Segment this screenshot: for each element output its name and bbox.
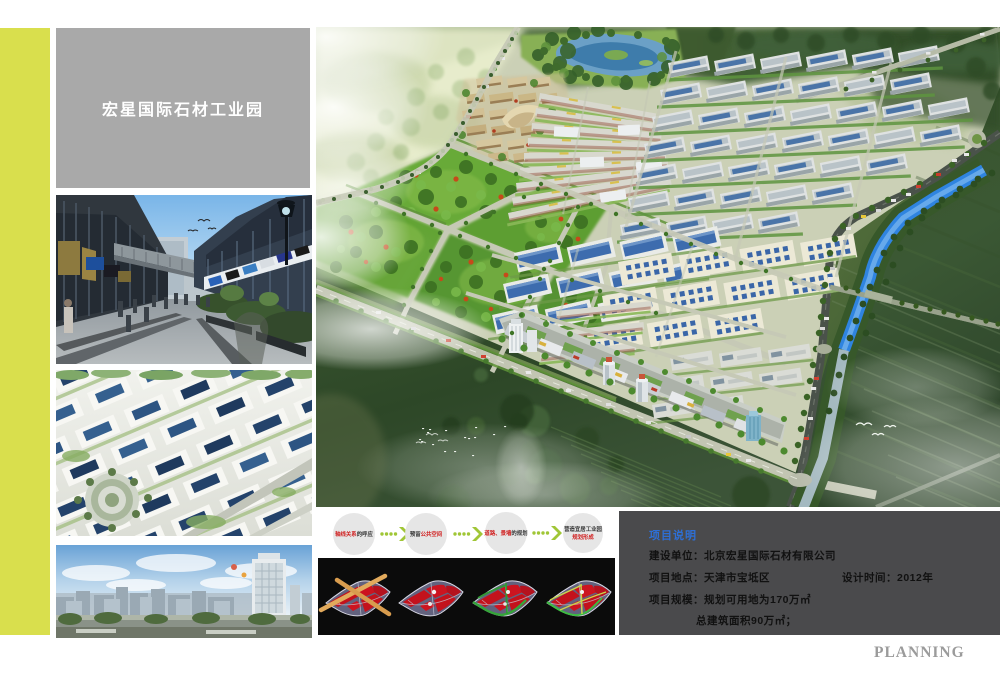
svg-text:预留公共空间: 预留公共空间 xyxy=(410,530,443,538)
svg-text:轴线关系的呼应: 轴线关系的呼应 xyxy=(335,530,373,538)
svg-text:道路、景墙的规划: 道路、景墙的规划 xyxy=(484,529,528,537)
svg-text:规划形成: 规划形成 xyxy=(572,533,594,541)
svg-text:营造宜居工业园: 营造宜居工业园 xyxy=(564,525,602,533)
